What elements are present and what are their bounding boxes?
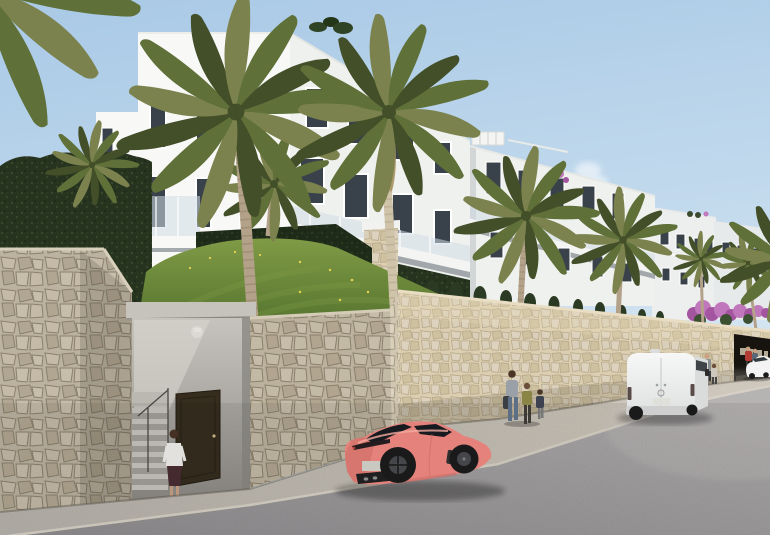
van-taillight-left xyxy=(628,387,632,400)
architectural-render: Street-level view of a modern white Medi… xyxy=(0,0,770,535)
car-front-wheel xyxy=(450,445,479,474)
entrance-lamp xyxy=(191,326,203,338)
car-rear-wheel xyxy=(380,447,416,483)
render-canvas xyxy=(0,0,770,535)
van-plate xyxy=(653,398,670,405)
van-mirror xyxy=(705,369,709,376)
van-taillight-right xyxy=(691,384,695,396)
cargo-van xyxy=(617,349,713,425)
